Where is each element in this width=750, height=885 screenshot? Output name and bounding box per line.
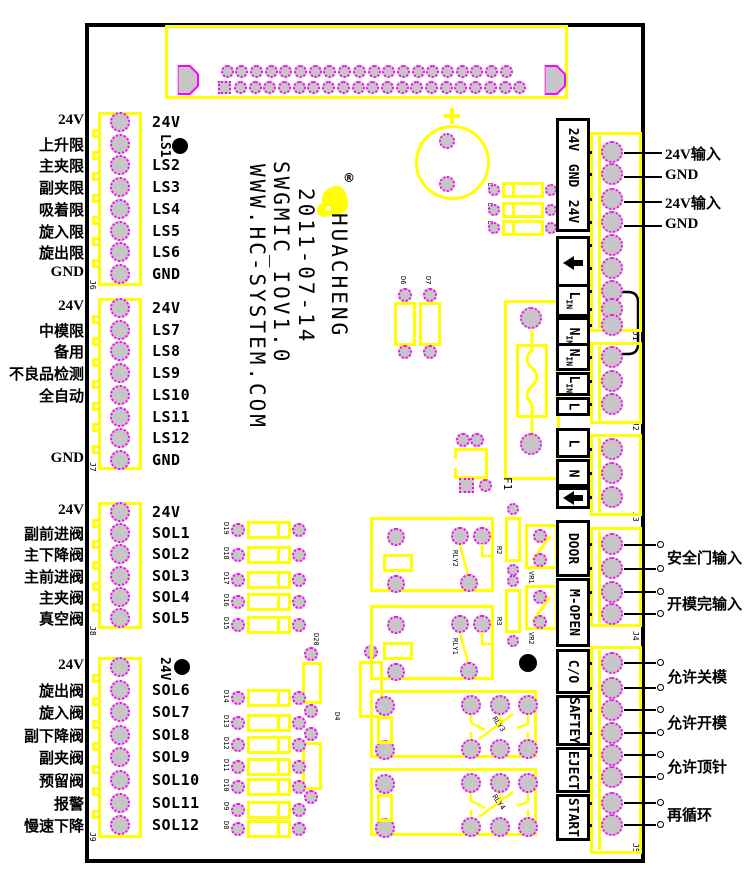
leader-line	[624, 201, 662, 203]
pad	[338, 65, 351, 78]
pad	[304, 727, 318, 741]
silkscreen-brand: HUACHENG	[328, 213, 350, 338]
pad	[263, 81, 276, 94]
side-box-n: NIN	[556, 343, 590, 371]
side-box-power: 24VGND24V	[556, 118, 590, 232]
diode-body	[247, 616, 291, 634]
pad	[231, 738, 245, 752]
pad	[520, 307, 542, 329]
label-sub: IN	[565, 383, 574, 393]
pad	[309, 65, 322, 78]
pad	[278, 81, 291, 94]
pin-function-label: 24V	[0, 657, 84, 674]
pin-function-label: 主前进阀	[0, 566, 84, 587]
block-tab	[92, 358, 101, 367]
pad	[110, 608, 130, 628]
pad	[231, 618, 245, 632]
pad	[412, 65, 425, 78]
diode-body	[419, 302, 441, 346]
pad	[470, 65, 483, 78]
pad	[398, 288, 412, 302]
leader-line	[624, 225, 662, 227]
relay-contact-icon	[373, 693, 540, 761]
io-signal-label: 允许开模	[667, 712, 727, 733]
registered-mark: ®	[343, 171, 355, 185]
leader-end	[657, 659, 664, 666]
side-box-start: START	[556, 794, 590, 841]
pad	[423, 288, 437, 302]
resistor-designator: R3	[495, 617, 503, 625]
pad	[601, 766, 623, 788]
pad	[231, 523, 245, 537]
pad	[533, 529, 547, 543]
pad	[231, 780, 245, 794]
pin-name-label: SOL12	[152, 816, 200, 834]
diode-band	[512, 223, 515, 233]
pad	[110, 320, 130, 340]
label-sub: IN	[565, 356, 574, 366]
pin-function-label: 24V	[0, 502, 84, 519]
diode-designator: D16	[222, 594, 230, 607]
side-box-label: 24V	[565, 127, 580, 150]
pad	[479, 479, 492, 492]
side-box-label: LIN	[565, 292, 582, 309]
pin-function-label: 副夹阀	[0, 747, 84, 768]
pad	[440, 81, 453, 94]
pad	[439, 133, 455, 149]
pad	[601, 370, 623, 392]
pad	[110, 134, 130, 154]
pad	[484, 81, 497, 94]
leader-end	[657, 541, 664, 548]
pad	[520, 433, 542, 455]
pad	[231, 803, 245, 817]
pad	[601, 652, 623, 674]
diode-designator: D14	[222, 690, 230, 703]
diode-band	[277, 804, 280, 816]
pad	[231, 595, 245, 609]
side-box-label: DOOR	[566, 533, 581, 564]
resistor-designator: R2	[495, 546, 503, 554]
pin-name-label: LS2	[152, 156, 181, 174]
pin-function-label: 主下降阀	[0, 544, 84, 565]
pad	[601, 141, 623, 163]
block-tab	[92, 582, 101, 591]
diode-band	[277, 692, 280, 704]
connector-designator: J9	[88, 832, 97, 842]
pin-name-label: LS10	[152, 386, 190, 404]
pad	[110, 264, 130, 284]
pad	[456, 433, 470, 447]
block-tab	[92, 237, 101, 246]
pad	[533, 553, 547, 567]
power-input-label: 24V输入	[665, 143, 721, 164]
leader-line	[624, 152, 662, 154]
diode-band	[512, 205, 515, 215]
pad	[231, 760, 245, 774]
diode-designator: D11	[222, 759, 230, 772]
pin-name-label: LS12	[152, 429, 190, 447]
pad	[279, 65, 292, 78]
leader-end	[657, 565, 664, 572]
left-arrow-tip	[563, 491, 574, 505]
block-tab	[92, 540, 101, 549]
block-tab	[92, 172, 101, 181]
pad	[533, 590, 547, 604]
block-tab	[92, 129, 101, 138]
pin-name-label: GND	[152, 451, 181, 469]
fiducial-dot	[172, 138, 188, 154]
leader-line	[624, 591, 656, 593]
pad	[601, 234, 623, 256]
pad	[601, 486, 623, 508]
pad	[368, 65, 381, 78]
diode-body	[502, 202, 544, 218]
pad	[304, 790, 318, 804]
diode-band	[277, 549, 280, 561]
pad	[601, 581, 623, 603]
left-arrow-icon	[563, 256, 583, 270]
block-tab	[92, 216, 101, 225]
pin-function-label: 主夹阀	[0, 587, 84, 608]
pad	[601, 346, 623, 368]
diode-body	[247, 820, 291, 838]
leader-end	[657, 821, 664, 828]
diode-band	[277, 761, 280, 773]
pin-name-label: LS9	[152, 364, 181, 382]
block-tab	[92, 337, 101, 346]
side-box-label: NIN	[565, 348, 582, 365]
leader-end	[657, 588, 664, 595]
diode-band	[277, 596, 280, 608]
pad	[304, 704, 318, 718]
side-box-c-o: C/O	[556, 649, 590, 694]
relay-contact-icon	[373, 520, 497, 595]
pin-function-label: 中模限	[0, 320, 84, 341]
resistor-body	[505, 517, 521, 562]
pin-function-label: 24V	[0, 112, 84, 129]
pad	[110, 657, 130, 677]
pad	[485, 65, 498, 78]
pin-function-label: 真空阀	[0, 608, 84, 629]
pad	[500, 65, 513, 78]
label-sub: IN	[565, 300, 574, 310]
pad	[234, 81, 247, 94]
pad	[110, 502, 130, 522]
block-tab	[92, 697, 101, 706]
block-tab	[92, 742, 101, 751]
leader-end	[657, 729, 664, 736]
pad	[231, 716, 245, 730]
side-box-label: N	[565, 469, 580, 477]
side-box-label: GND	[565, 163, 580, 186]
block-tab	[92, 787, 101, 796]
diode-designator: D10	[222, 779, 230, 792]
io-signal-label: 开模完输入	[667, 593, 742, 614]
diode-body	[502, 220, 544, 236]
pin-name-label: 24V	[152, 113, 181, 131]
leader-end	[657, 706, 664, 713]
silkscreen-website: WWW.HC-SYSTEM.COM	[246, 164, 268, 430]
leader-line	[624, 824, 656, 826]
io-signal-label: 安全门输入	[667, 547, 742, 568]
pad	[601, 393, 623, 415]
pin-function-label: 旋入阀	[0, 702, 84, 723]
diode-body	[247, 736, 291, 754]
pad	[322, 81, 335, 94]
brand-logo-dot	[326, 206, 331, 211]
power-input-label: GND	[665, 167, 698, 184]
relay-rly2: RLY2	[370, 517, 494, 592]
block-tab	[92, 315, 101, 324]
diode-body	[247, 801, 291, 819]
diode-band	[277, 524, 280, 536]
pin-name-label: 24V	[152, 299, 181, 317]
side-box-m-open: M-OPEN	[556, 578, 590, 647]
pad	[293, 81, 306, 94]
block-tab	[92, 194, 101, 203]
diode-designator: D19	[222, 522, 230, 535]
side-box-label: 24V	[565, 199, 580, 222]
pad	[110, 587, 130, 607]
side-box-arrow	[556, 487, 590, 509]
leader-end	[657, 610, 664, 617]
connector-designator: J7	[88, 462, 97, 472]
diode-body	[394, 302, 416, 346]
pad	[231, 822, 245, 836]
block-tab	[92, 423, 101, 432]
pad	[423, 345, 437, 359]
diode-band	[277, 619, 280, 631]
pin-function-label: 旋出限	[0, 242, 84, 263]
relay-contact-icon	[373, 608, 497, 683]
silkscreen-date: 2011-07-14	[295, 188, 317, 344]
pad	[601, 438, 623, 460]
pad	[488, 184, 500, 196]
pin-name-label: LS4	[152, 200, 181, 218]
pad	[601, 677, 623, 699]
pad	[110, 298, 130, 318]
pad	[110, 221, 130, 241]
pin-name-label: SOL2	[152, 545, 190, 563]
pad	[425, 81, 438, 94]
pin-name-label: LS5	[152, 222, 181, 240]
diode-designator: D17	[222, 572, 230, 585]
diode-body	[247, 689, 291, 707]
pad	[110, 793, 130, 813]
leader-line	[624, 613, 656, 615]
pad	[292, 738, 306, 752]
leader-line	[624, 776, 656, 778]
pad	[601, 314, 623, 336]
pin-function-label: 吸着限	[0, 199, 84, 220]
diode-designator: D6	[399, 276, 407, 284]
pad	[221, 65, 234, 78]
pad	[110, 450, 130, 470]
power-input-label: GND	[665, 216, 698, 233]
pad	[601, 722, 623, 744]
left-arrow-stem	[574, 260, 583, 266]
pad	[601, 744, 623, 766]
pin-name-label: SOL9	[152, 748, 190, 766]
relay-designator: RLY2	[451, 550, 459, 567]
pad	[292, 803, 306, 817]
pad	[601, 699, 623, 721]
pad	[499, 81, 512, 94]
pad	[292, 760, 306, 774]
pad	[454, 81, 467, 94]
diode-designator: D12	[222, 737, 230, 750]
pad	[601, 163, 623, 185]
pad	[398, 345, 412, 359]
varistor-designator: VR1	[527, 571, 535, 584]
diode-body	[247, 778, 291, 796]
pin-name-label: SOL10	[152, 771, 200, 789]
side-box-door: DOOR	[556, 520, 590, 577]
pad	[381, 81, 394, 94]
pad	[601, 603, 623, 625]
pad	[601, 792, 623, 814]
pad	[382, 65, 395, 78]
diode-designator: D7	[424, 276, 432, 284]
pad	[292, 523, 306, 537]
pad	[249, 81, 262, 94]
pin-function-label: 全自动	[0, 385, 84, 406]
pad	[292, 822, 306, 836]
relay-rly4: RLY4	[370, 768, 537, 836]
pin-function-label: 上升限	[0, 134, 84, 155]
io-signal-label: 允许关模	[667, 666, 727, 687]
pad	[507, 503, 519, 515]
fiducial-dot	[174, 659, 190, 675]
pin-name-label: SOL3	[152, 567, 190, 585]
pad	[110, 112, 130, 132]
side-box-arrow	[556, 236, 590, 290]
pin-function-label: 预留阀	[0, 770, 84, 791]
block-tab	[92, 445, 101, 454]
diode-band	[277, 781, 280, 793]
pin-function-label: 副下降阀	[0, 725, 84, 746]
side-box-label: L	[565, 439, 580, 447]
side-box-l: LIN	[556, 372, 590, 396]
relay-contact-icon	[373, 771, 540, 839]
pad	[533, 615, 547, 629]
block-tab	[92, 151, 101, 160]
pad	[110, 199, 130, 219]
block-tab	[92, 765, 101, 774]
block-tab	[92, 603, 101, 612]
diode-designator: D18	[222, 547, 230, 560]
side-box-label: C/O	[565, 660, 580, 683]
io-signal-label: 允许顶针	[667, 756, 727, 777]
relay-designator: RLY1	[451, 638, 459, 655]
side-box-label: L	[565, 403, 580, 411]
pad	[513, 81, 526, 94]
pad	[601, 814, 623, 836]
leader-line	[624, 709, 656, 711]
pin-function-label: 副夹限	[0, 177, 84, 198]
leader-end	[657, 799, 664, 806]
pad	[250, 65, 263, 78]
side-box-label: SAFTEY	[566, 697, 581, 744]
pad	[294, 65, 307, 78]
pad	[439, 176, 455, 192]
left-arrow-icon	[563, 491, 583, 505]
pin-name-label: LS11	[152, 408, 190, 426]
diode-body	[247, 571, 291, 589]
pin-name-label: LS6	[152, 243, 181, 261]
left-arrow-stem	[574, 495, 583, 501]
pad	[231, 573, 245, 587]
pin-function-label: 旋入限	[0, 221, 84, 242]
label-main: N	[566, 327, 581, 335]
pad	[292, 595, 306, 609]
pad	[410, 81, 423, 94]
pad-square	[459, 478, 474, 493]
pad	[507, 635, 519, 647]
block-tab	[92, 674, 101, 683]
side-box-n: N	[556, 459, 590, 487]
pad	[601, 557, 623, 579]
rectifier-notch	[451, 459, 457, 468]
leader-line	[624, 568, 656, 570]
pad	[110, 363, 130, 383]
leader-line	[624, 544, 656, 546]
pin-name-label: 24V	[152, 503, 181, 521]
leader-line	[624, 754, 656, 756]
diode-designator: D4	[333, 712, 341, 720]
pin-function-label: 旋出阀	[0, 680, 84, 701]
diode-designator: D9	[222, 802, 230, 810]
diode-band	[277, 739, 280, 751]
pin-name-label: LS7	[152, 321, 181, 339]
terminal-block-inner	[598, 650, 601, 850]
pin-function-label: GND	[0, 264, 84, 281]
left-arrow-tip	[563, 256, 574, 270]
diode-band	[277, 717, 280, 729]
block-tab	[92, 561, 101, 570]
pad	[110, 407, 130, 427]
pin-name-label: SOL1	[152, 524, 190, 542]
pad	[218, 81, 231, 94]
power-input-label: 24V输入	[665, 192, 721, 213]
pad	[110, 770, 130, 790]
io-signal-label: 再循环	[667, 804, 712, 825]
leader-end	[657, 684, 664, 691]
pin-function-label: 24V	[0, 298, 84, 315]
pin-function-label: 副前进阀	[0, 523, 84, 544]
pin-name-label: SOL6	[152, 681, 190, 699]
pin-name-label: SOL7	[152, 703, 190, 721]
diode-body	[247, 593, 291, 611]
leader-end	[657, 751, 664, 758]
leader-line	[624, 802, 656, 804]
pad	[231, 548, 245, 562]
pad	[304, 647, 318, 661]
pad	[323, 65, 336, 78]
leader-end	[657, 773, 664, 780]
pad	[235, 65, 248, 78]
diode-band	[512, 185, 515, 195]
pad	[469, 81, 482, 94]
fuse-designator: F1	[501, 477, 514, 490]
side-box-saftey: SAFTEY	[556, 695, 590, 746]
pad	[352, 81, 365, 94]
pad	[426, 65, 439, 78]
pad	[488, 222, 500, 234]
side-box-eject: EJECT	[556, 747, 590, 793]
pad	[601, 462, 623, 484]
